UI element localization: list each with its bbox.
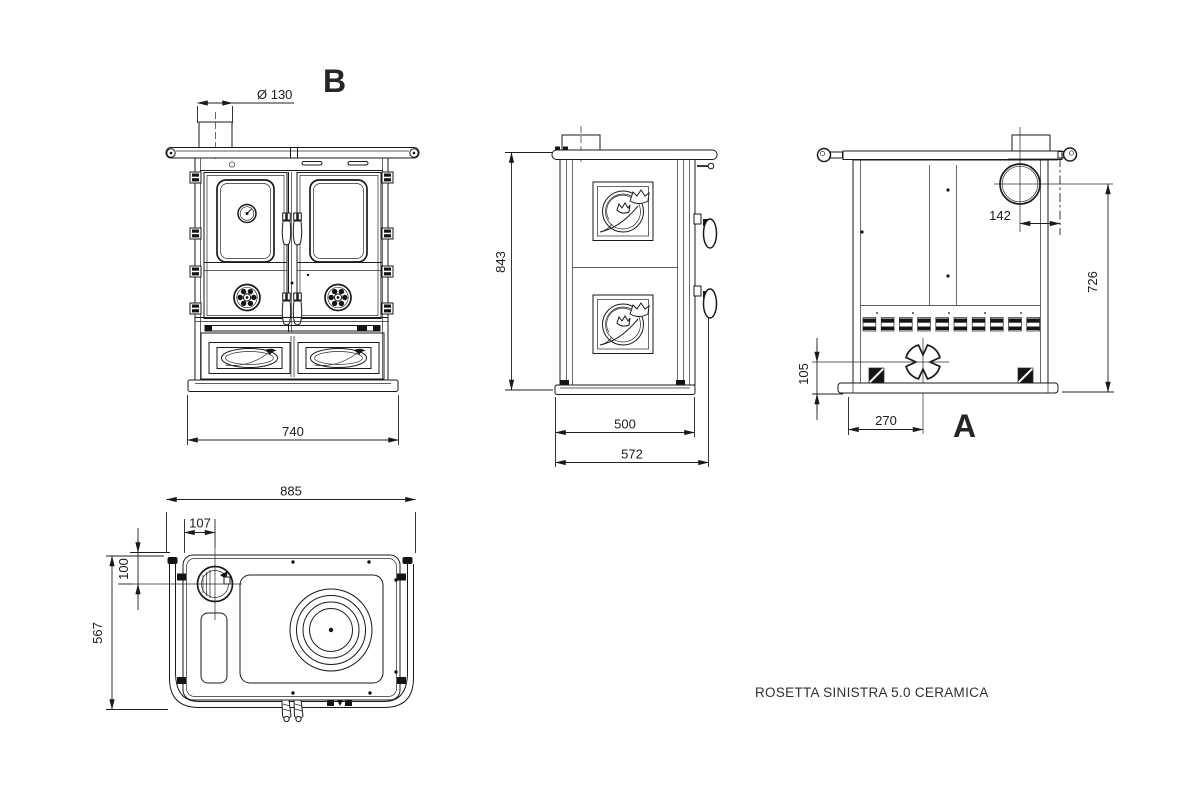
thermometer — [238, 205, 256, 223]
door-handle-lever — [282, 293, 290, 325]
door-hinge — [190, 228, 201, 239]
front-latches-plan — [327, 700, 352, 706]
dim-flue-diameter: Ø 130 — [198, 87, 295, 123]
door-hinge — [382, 266, 393, 277]
base-front — [188, 380, 398, 392]
dim-rear-intake-offset: 270 — [849, 397, 924, 435]
door-hinge — [382, 303, 393, 314]
door-hinge — [382, 172, 393, 183]
base-rear — [838, 383, 1058, 393]
dim-rear-intake-height-text: 105 — [796, 363, 811, 385]
top-plate-side — [552, 147, 717, 169]
rail-bracket — [177, 677, 186, 684]
top-plate-rear — [818, 135, 1077, 162]
rear-view-label: A — [953, 408, 976, 444]
air-rosette-left — [234, 285, 260, 311]
top-plate-front — [166, 148, 419, 159]
dim-front-width: 740 — [188, 395, 399, 445]
side-handle-upper — [694, 214, 717, 248]
dim-rear-flue-height: 726 — [1062, 184, 1114, 392]
dim-top-depth-text: 567 — [90, 622, 105, 644]
dim-flue-diameter-text: Ø 130 — [257, 87, 292, 102]
rear-vent-slots — [863, 312, 1040, 331]
stove-foot-right — [1018, 368, 1033, 383]
wood-drawer — [201, 333, 384, 379]
rail-bracket — [177, 574, 186, 581]
dim-rear-flue-offset: 142 — [989, 158, 1060, 235]
air-rosette-right — [325, 285, 351, 311]
door-hinge — [190, 303, 201, 314]
door-hinge — [190, 172, 201, 183]
dim-side-height-text: 843 — [493, 251, 508, 273]
dim-side-height: 843 — [493, 153, 553, 391]
flue-collar-rear — [1012, 135, 1050, 151]
dim-rear-flue-height-text: 726 — [1085, 271, 1100, 293]
door-handle-lever — [293, 213, 301, 245]
door-hinge-plan — [294, 700, 303, 722]
top-vent-slot — [302, 162, 322, 166]
side-handle-lower — [694, 286, 717, 318]
door-hinge-plan — [282, 700, 291, 722]
dim-side-depth-inner-text: 500 — [614, 417, 636, 432]
dim-top-flue-y: 100 — [116, 528, 170, 610]
door-hinge — [190, 266, 201, 277]
dim-side-depth-total-text: 572 — [621, 447, 643, 462]
dim-front-width-text: 740 — [282, 424, 304, 439]
dim-top-flue-x: 107 — [185, 516, 216, 554]
technical-drawing-page: B Ø 130 — [0, 0, 1200, 800]
stove-technical-drawing: B Ø 130 — [0, 0, 1200, 800]
side-recess-plan — [201, 613, 227, 683]
dim-top-width-text: 885 — [280, 484, 302, 499]
top-plate-plan — [183, 555, 400, 700]
front-view-label: B — [323, 63, 346, 99]
drawer-ceramic-panel-right — [298, 343, 379, 374]
dim-top-flue-x-text: 107 — [189, 516, 211, 531]
stove-body-side — [560, 160, 695, 386]
cooktop-plate — [240, 575, 383, 683]
front-view: B Ø 130 — [166, 63, 419, 445]
rail-bracket — [397, 677, 406, 684]
ceramic-side-panel-upper — [593, 182, 653, 241]
dim-rear-intake-height: 105 — [796, 338, 843, 420]
drawer-ceramic-panel-left — [209, 343, 290, 374]
door-glass-right — [310, 180, 367, 262]
rail-bracket — [397, 574, 406, 581]
stove-body-rear — [853, 160, 1048, 383]
dim-rear-intake-offset-text: 270 — [875, 413, 897, 428]
side-view: 843 500 572 — [493, 126, 717, 467]
product-name: ROSETTA SINISTRA 5.0 CERAMICA — [755, 685, 989, 700]
stove-foot-left — [869, 368, 884, 383]
door-handle-lever — [293, 293, 301, 325]
top-vent-slot — [348, 162, 368, 166]
ceramic-side-panel-lower — [593, 295, 653, 354]
base-side — [555, 380, 695, 395]
dim-rear-flue-offset-text: 142 — [989, 208, 1011, 223]
door-handle-lever — [282, 213, 290, 245]
top-view: 885 107 100 567 — [90, 484, 416, 722]
rear-view: A — [796, 127, 1114, 444]
door-hinge — [382, 228, 393, 239]
dim-top-flue-y-text: 100 — [116, 558, 131, 580]
